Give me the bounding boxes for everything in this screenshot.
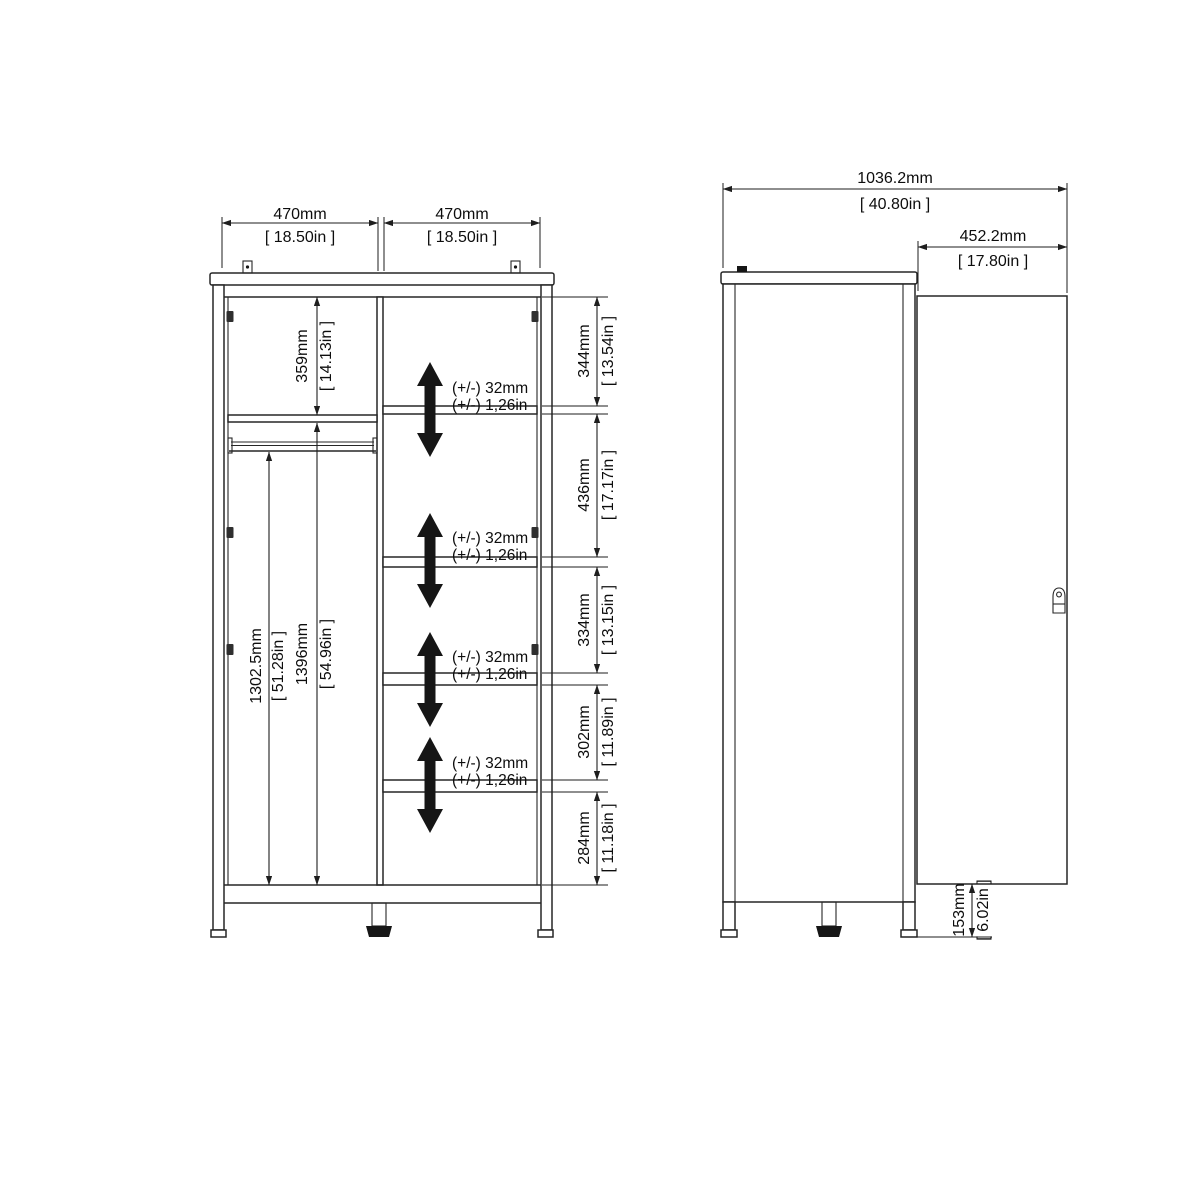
side-center-adjustable-foot [816,902,842,937]
dim-section-5: 284mm [ 11.18in ] [576,792,617,885]
dim-interior-height-in-label: [ 54.96in ] [318,619,335,689]
dim-interior-height-mm-label: 1396mm [294,623,311,685]
dim-top-section-in-label: [ 14.13in ] [318,321,335,391]
center-adjustable-foot [366,903,392,937]
dim-right-section-chain: 344mm [ 13.54in ] 436mm [ 17.17in ] 334m… [542,297,617,885]
front-view: (+/-) 32mm (+/-) 1,26in (+/-) 32mm (+/-)… [210,206,617,937]
shelf-adjust-label-1-in: (+/-) 1,26in [452,397,527,414]
dim-section-5-mm-label: 284mm [576,811,593,864]
side-front-leg [903,902,915,930]
dim-section-4-in-label: [ 11.89in ] [600,697,617,766]
side-top-fitting [737,266,747,272]
hanging-rail [228,438,377,453]
dim-section-4-mm-label: 302mm [576,705,593,758]
left-side-panel [213,285,224,930]
shelf-adjust-label-3-in: (+/-) 1,26in [452,666,527,683]
dim-hanging-space-in-label: [ 51.28in ] [270,631,287,701]
top-fitting-right [511,261,520,273]
left-foot [211,930,226,937]
dim-door-width-in-label: [ 17.80in ] [958,253,1028,270]
dim-section-3: 334mm [ 13.15in ] [576,567,617,673]
side-top-panel [721,272,917,284]
center-partition [377,297,383,885]
dim-section-2-in-label: [ 17.17in ] [600,450,617,520]
dim-section-1-mm-label: 344mm [576,324,593,377]
top-fitting-left [243,261,252,273]
dim-door-width: 452.2mm [ 17.80in ] [918,228,1067,291]
dim-section-3-in-label: [ 13.15in ] [600,585,617,655]
technical-drawing-canvas: (+/-) 32mm (+/-) 1,26in (+/-) 32mm (+/-)… [0,0,1200,1200]
shelf-adjust-label-2-mm: (+/-) 32mm [452,530,528,547]
shelf-adjust-label-4-mm: (+/-) 32mm [452,755,528,772]
dim-door-right-mm-label: 470mm [435,206,488,223]
dim-top-section-height: 359mm [ 14.13in ] [294,297,335,415]
dim-door-left-in-label: [ 18.50in ] [265,229,335,246]
dim-door-width-mm-label: 452.2mm [960,228,1027,245]
right-side-panel [541,285,552,930]
shelf-adjust-label-4-in: (+/-) 1,26in [452,772,527,789]
right-foot [538,930,553,937]
fixed-shelf [228,415,377,422]
dim-door-right-in-label: [ 18.50in ] [427,229,497,246]
dim-door-left-mm-label: 470mm [273,206,326,223]
shelf-adjust-label-2-in: (+/-) 1,26in [452,547,527,564]
dim-plinth-in-label: [ 6.02in ] [975,879,992,940]
dim-section-1-in-label: [ 13.54in ] [600,316,617,386]
shelf-adjust-label-1-mm: (+/-) 32mm [452,380,528,397]
dim-section-1: 344mm [ 13.54in ] [576,297,617,406]
shelf-adjust-label-3-mm: (+/-) 32mm [452,649,528,666]
side-front-foot [901,930,917,937]
hinge-left-top [227,311,234,322]
open-door-panel [917,296,1067,884]
wardrobe-body-side [723,284,915,902]
dim-top-section-mm-label: 359mm [294,329,311,382]
dim-total-depth-in-label: [ 40.80in ] [860,196,930,213]
dim-section-3-mm-label: 334mm [576,593,593,646]
top-panel [210,273,554,285]
dim-hanging-space-mm-label: 1302.5mm [248,628,265,704]
dim-section-2: 436mm [ 17.17in ] [576,414,617,557]
dim-total-depth-mm-label: 1036.2mm [857,170,933,187]
hinge-left-middle [227,527,234,538]
dim-plinth-mm-label: 153mm [951,883,968,936]
hinge-right-bottom [532,644,539,655]
dim-interior-height: 1396mm [ 54.96in ] [294,423,335,885]
hinge-right-middle [532,527,539,538]
dim-section-4: 302mm [ 11.89in ] [576,685,617,780]
wardrobe-dimension-diagram: (+/-) 32mm (+/-) 1,26in (+/-) 32mm (+/-)… [0,0,1200,1200]
side-back-foot [721,930,737,937]
hinge-right-top [532,311,539,322]
side-view: 1036.2mm [ 40.80in ] 452.2mm [ 17.80in ]… [721,170,1067,941]
dim-section-2-mm-label: 436mm [576,458,593,511]
side-back-leg [723,902,735,930]
hinge-left-bottom [227,644,234,655]
dim-section-5-in-label: [ 11.18in ] [600,803,617,872]
dim-hanging-space-height: 1302.5mm [ 51.28in ] [248,452,287,885]
